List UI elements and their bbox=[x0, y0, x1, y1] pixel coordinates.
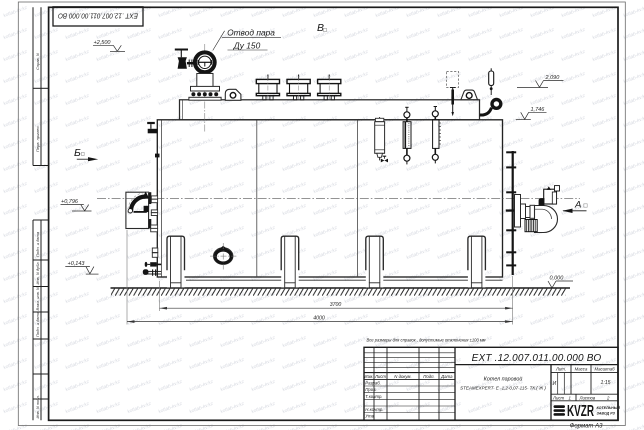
svg-text:Инв. N дубл.: Инв. N дубл. bbox=[35, 261, 40, 284]
svg-text:Лист: Лист bbox=[552, 395, 564, 400]
svg-text:А: А bbox=[574, 199, 581, 210]
svg-text:Формат А3: Формат А3 bbox=[570, 424, 603, 430]
svg-text:KVZR: KVZR bbox=[567, 403, 594, 420]
svg-text:Перв. примен.: Перв. примен. bbox=[35, 125, 40, 152]
svg-text:Т.контр.: Т.контр. bbox=[365, 394, 382, 399]
svg-text:Утв.: Утв. bbox=[365, 414, 375, 419]
svg-text:+0,796: +0,796 bbox=[61, 199, 79, 205]
svg-text:Листов: Листов bbox=[579, 395, 596, 400]
svg-text:Н.контр.: Н.контр. bbox=[365, 407, 383, 412]
svg-text:1,746: 1,746 bbox=[531, 107, 546, 113]
svg-text:Все размеры для справок , допу: Все размеры для справок , допустимые отк… bbox=[367, 337, 487, 342]
svg-text:3700: 3700 bbox=[330, 302, 342, 308]
svg-text:Дата: Дата bbox=[440, 374, 453, 379]
svg-text:Б: Б bbox=[74, 147, 81, 159]
svg-text:Разраб.: Разраб. bbox=[365, 381, 381, 386]
svg-text:Изм.: Изм. bbox=[364, 374, 373, 379]
svg-text:Взам. инв. N: Взам. инв. N bbox=[35, 287, 40, 310]
svg-text:N докум.: N докум. bbox=[394, 374, 411, 379]
svg-text:Подп. и дата: Подп. и дата bbox=[35, 311, 40, 337]
svg-text:ЕХТ .12.007.011.00.000 ВО: ЕХТ .12.007.011.00.000 ВО bbox=[58, 12, 138, 21]
svg-text:0,000: 0,000 bbox=[550, 276, 565, 282]
svg-text:В: В bbox=[317, 22, 324, 34]
svg-text:4000: 4000 bbox=[313, 315, 325, 321]
svg-text:Ду 150: Ду 150 bbox=[233, 40, 261, 50]
svg-text:Справ. N: Справ. N bbox=[35, 53, 40, 70]
svg-text:+2,500: +2,500 bbox=[94, 40, 112, 46]
svg-text:STEAMEXPERT- Е -1,2-0,07-115-: STEAMEXPERT- Е -1,2-0,07-115- ТК.( Ж ) bbox=[460, 385, 546, 390]
svg-text:Пров.: Пров. bbox=[365, 387, 376, 392]
svg-text:КОТЕЛЬНЫЙ: КОТЕЛЬНЫЙ bbox=[597, 406, 621, 410]
svg-text:Масштаб: Масштаб bbox=[594, 367, 615, 372]
svg-text:И: И bbox=[553, 381, 557, 387]
svg-text:2,090: 2,090 bbox=[545, 75, 561, 81]
svg-text:1:15: 1:15 bbox=[600, 380, 610, 386]
svg-text:Масса: Масса bbox=[575, 367, 588, 372]
svg-text:Подп. и дата: Подп. и дата bbox=[35, 231, 40, 257]
svg-text:Котел паровой: Котел паровой bbox=[484, 376, 523, 383]
svg-text:+0,143: +0,143 bbox=[68, 261, 86, 267]
svg-text:ЕХТ .12.007.011.00.000 ВО: ЕХТ .12.007.011.00.000 ВО bbox=[472, 353, 602, 364]
svg-text:Отвод пара: Отвод пара bbox=[227, 28, 275, 38]
svg-text:Подп.: Подп. bbox=[423, 374, 434, 379]
svg-text:Лист: Лист bbox=[374, 374, 386, 379]
svg-text:Инв. N подл.: Инв. N подл. bbox=[35, 395, 40, 418]
svg-text:ЗАВОД РЗ: ЗАВОД РЗ bbox=[597, 412, 616, 416]
svg-text:Лит.: Лит. bbox=[555, 367, 566, 372]
